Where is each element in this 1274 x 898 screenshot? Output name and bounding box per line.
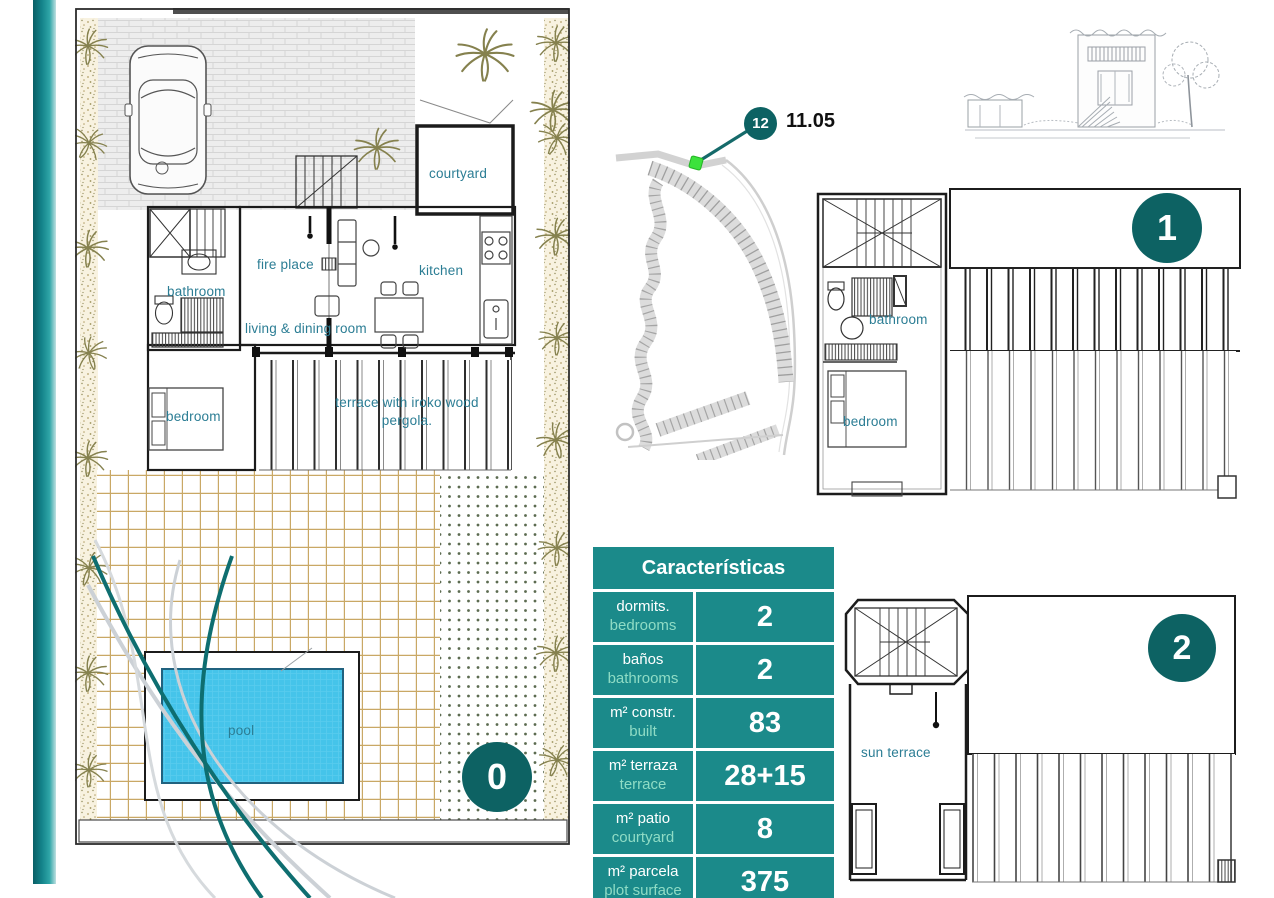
floor-1-badge: 1 bbox=[1132, 193, 1202, 263]
elevation-sketch bbox=[960, 5, 1235, 145]
table-row-terrace: m² terraza terrace 28+15 bbox=[593, 751, 834, 801]
label-living-dining: living & dining room bbox=[245, 321, 367, 336]
floor-2-badge: 2 bbox=[1148, 614, 1216, 682]
table-row-courtyard: m² patio courtyard 8 bbox=[593, 804, 834, 854]
floor-0-badge: 0 bbox=[462, 742, 532, 812]
site-map bbox=[598, 95, 798, 460]
row-label-es: m² terraza bbox=[609, 757, 677, 776]
table-row-plot-surface: m² parcela plot surface 375 bbox=[593, 857, 834, 898]
table-row-bathrooms: baños bathrooms 2 bbox=[593, 645, 834, 695]
row-label-es: m² patio bbox=[616, 810, 670, 829]
row-label-en: terrace bbox=[620, 776, 667, 795]
plot-number-badge: 12 bbox=[744, 107, 777, 140]
row-label-en: bedrooms bbox=[610, 617, 677, 636]
plot-marker bbox=[689, 156, 704, 171]
label-terrace: terrace with iroko wood pergola. bbox=[322, 394, 492, 429]
label-bedroom-f1: bedroom bbox=[843, 414, 898, 429]
row-label-en: courtyard bbox=[612, 829, 675, 848]
table-title: Características bbox=[593, 547, 834, 589]
plan-sheet: 12 11.05 bbox=[0, 0, 1274, 898]
row-label-es: baños bbox=[623, 651, 664, 670]
brand-accent-bar bbox=[33, 0, 56, 884]
label-bathroom-f1: bathroom bbox=[869, 312, 928, 327]
floor-1-number: 1 bbox=[1157, 207, 1177, 249]
label-courtyard: courtyard bbox=[429, 166, 487, 181]
row-value: 8 bbox=[696, 804, 834, 854]
label-fire-place: fire place bbox=[257, 257, 314, 272]
row-label-es: m² constr. bbox=[610, 704, 676, 723]
row-value: 375 bbox=[696, 857, 834, 898]
kitchen-fixtures bbox=[480, 216, 512, 344]
row-label-es: dormits. bbox=[616, 598, 669, 617]
plot-number: 12 bbox=[752, 115, 769, 132]
elevation-value: 11.05 bbox=[786, 110, 835, 133]
row-value: 2 bbox=[696, 592, 834, 642]
row-value: 2 bbox=[696, 645, 834, 695]
row-label-en: bathrooms bbox=[608, 670, 679, 689]
label-pool: pool bbox=[228, 723, 254, 738]
row-label-en: plot surface bbox=[604, 882, 682, 898]
characteristics-table: Características dormits. bedrooms 2 baño… bbox=[593, 547, 834, 898]
floor-2-number: 2 bbox=[1173, 629, 1192, 668]
car bbox=[125, 46, 211, 194]
table-row-bedrooms: dormits. bedrooms 2 bbox=[593, 592, 834, 642]
label-bedroom-gf: bedroom bbox=[166, 409, 221, 424]
row-value: 28+15 bbox=[696, 751, 834, 801]
table-row-built: m² constr. built 83 bbox=[593, 698, 834, 748]
row-label-es: m² parcela bbox=[608, 863, 679, 882]
row-label-en: built bbox=[629, 723, 657, 742]
row-value: 83 bbox=[696, 698, 834, 748]
label-sun-terrace: sun terrace bbox=[861, 745, 931, 760]
label-kitchen: kitchen bbox=[419, 263, 463, 278]
floor-0-number: 0 bbox=[487, 756, 507, 798]
label-bathroom: bathroom bbox=[167, 284, 226, 299]
